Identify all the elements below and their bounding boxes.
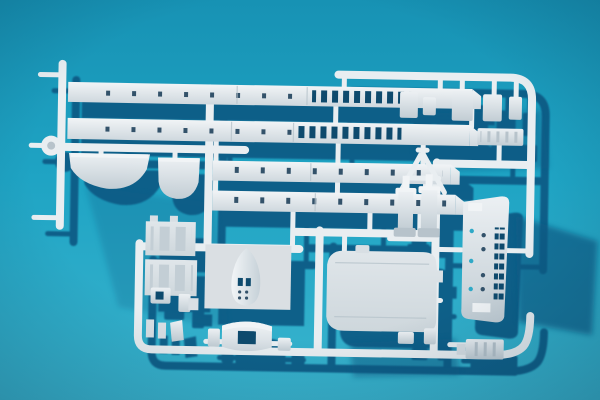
- vignette-overlay: [0, 0, 600, 400]
- photo-model-kit-sprue: [0, 0, 600, 400]
- sprue-photo-canvas: [0, 0, 600, 400]
